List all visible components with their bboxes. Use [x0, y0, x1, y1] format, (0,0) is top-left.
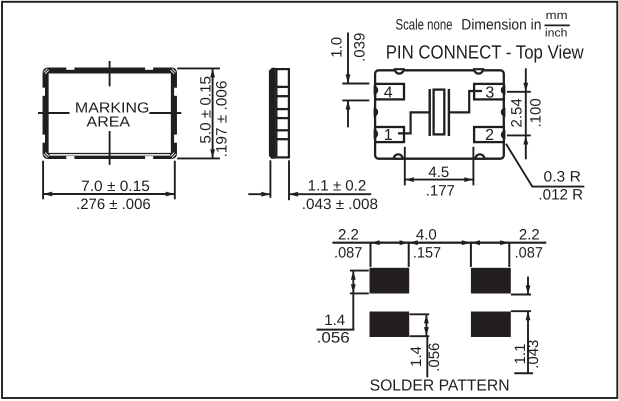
svg-text:.100: .100 — [528, 98, 545, 127]
svg-text:4: 4 — [384, 85, 393, 102]
svg-text:3: 3 — [485, 85, 494, 102]
svg-text:PIN CONNECT - Top View: PIN CONNECT - Top View — [386, 42, 584, 63]
svg-text:1.1 ± 0.2: 1.1 ± 0.2 — [308, 177, 367, 194]
svg-text:2.2: 2.2 — [338, 227, 359, 244]
svg-text:2: 2 — [485, 127, 494, 144]
svg-text:1.4: 1.4 — [408, 346, 425, 367]
svg-text:Dimension in: Dimension in — [461, 17, 541, 34]
svg-text:1.4: 1.4 — [324, 312, 345, 329]
svg-text:.039: .039 — [351, 33, 368, 62]
svg-text:.197 ± .006: .197 ± .006 — [214, 81, 231, 158]
svg-text:.043 ± .008: .043 ± .008 — [302, 196, 378, 213]
svg-text:AREA: AREA — [87, 115, 131, 131]
svg-text:.056: .056 — [426, 343, 443, 372]
svg-text:.177: .177 — [426, 182, 455, 199]
svg-text:.012 R: .012 R — [538, 187, 583, 204]
svg-text:2.2: 2.2 — [519, 227, 540, 244]
svg-text:.276 ± .006: .276 ± .006 — [76, 196, 151, 213]
svg-text:2.54: 2.54 — [508, 98, 525, 127]
svg-text:7.0 ± 0.15: 7.0 ± 0.15 — [81, 178, 150, 195]
svg-text:5.0 ± 0.15: 5.0 ± 0.15 — [198, 76, 215, 144]
svg-text:.157: .157 — [413, 245, 441, 262]
svg-text:mm: mm — [546, 9, 568, 22]
svg-text:SOLDER PATTERN: SOLDER PATTERN — [370, 378, 510, 395]
svg-text:.087: .087 — [334, 245, 362, 262]
svg-text:inch: inch — [545, 26, 568, 39]
svg-text:4.5: 4.5 — [428, 164, 449, 181]
svg-text:0.3 R: 0.3 R — [544, 169, 581, 186]
svg-text:1.0: 1.0 — [329, 37, 346, 58]
svg-text:1: 1 — [384, 127, 393, 144]
svg-text:4.0: 4.0 — [416, 227, 437, 244]
svg-text:Scale none: Scale none — [396, 17, 453, 34]
svg-text:.043: .043 — [525, 340, 542, 369]
svg-text:.087: .087 — [515, 245, 543, 262]
svg-text:.056: .056 — [317, 330, 350, 347]
